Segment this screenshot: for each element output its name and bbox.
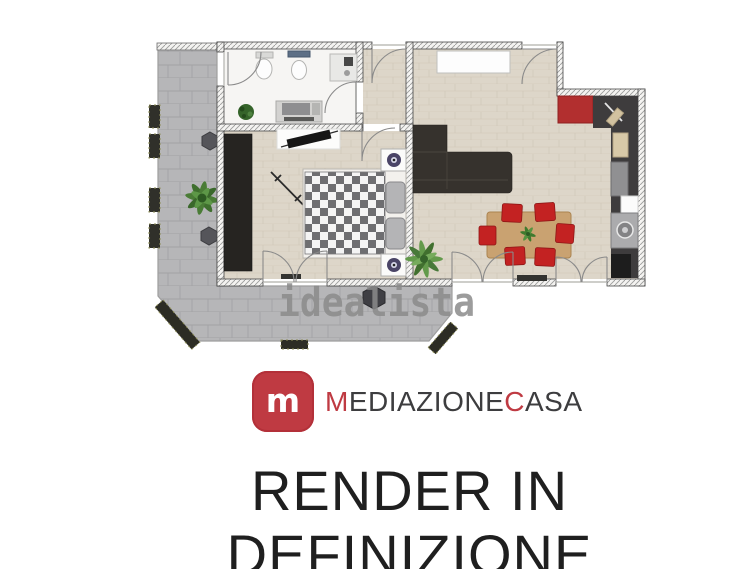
pillow [386,182,405,213]
terrace-stool-icon [201,227,217,245]
nightstand-top [381,149,406,171]
hall-floor [363,49,406,124]
nightstand-bottom [381,254,406,276]
floor-plan: idealista [0,0,729,362]
counter-top-white [621,196,638,213]
terrace-railing-bottom [281,340,308,349]
fridge [611,162,628,196]
sideboard [437,51,510,73]
idealista-watermark: idealista [278,280,475,326]
pillow [386,218,405,249]
logo-wordmark: MEDIAZIONECASA [325,386,583,418]
wardrobe [224,134,252,271]
render-status-caption: RENDER IN DEFINIZIONE [90,459,729,569]
logo-part-m: M [325,386,349,417]
logo-icon-letter: m [266,384,300,417]
washing-machine [611,213,638,248]
bathroom-plant-icon [238,104,254,120]
logo-part-ediazione: EDIAZIONE [349,386,504,417]
logo-part-c: C [504,386,525,417]
agency-logo: m MEDIAZIONECASA [252,371,583,432]
terrace-parapet [157,43,218,50]
terrace-stool-icon [202,132,218,150]
bathroom-cabinet [276,101,322,122]
logo-m-icon: m [252,371,314,432]
logo-part-asa: ASA [525,386,583,417]
red-cabinet [558,96,593,123]
shower [330,54,357,81]
sink [613,133,628,157]
bed [303,169,406,258]
page: idealista m MEDIAZIONECASA RENDER IN DEF… [0,0,729,569]
ceiling-lamp [277,129,340,149]
oven [611,254,631,278]
